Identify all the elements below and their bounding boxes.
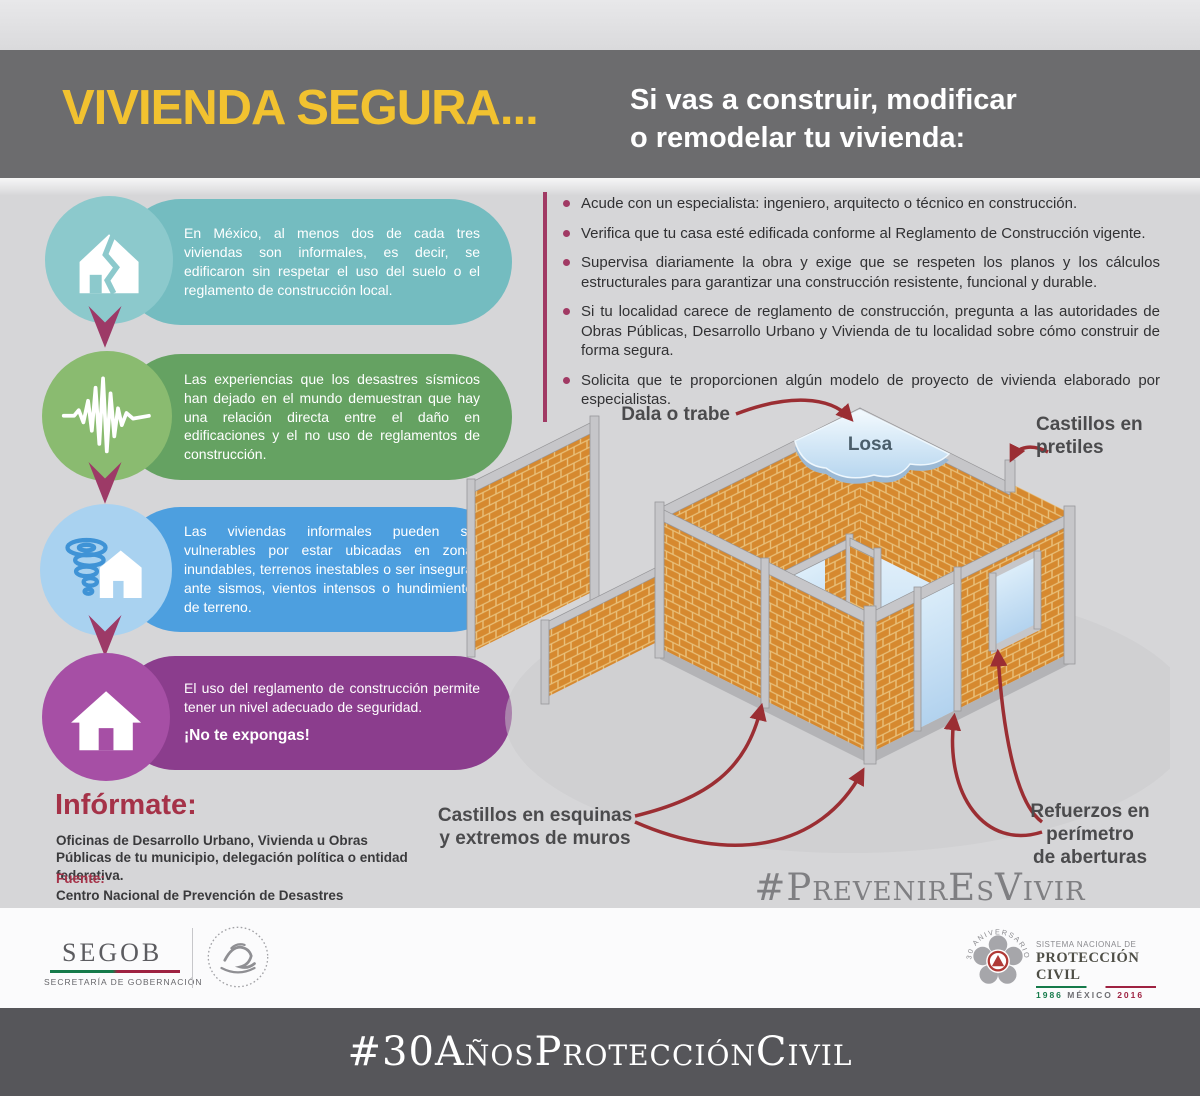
cracked-house-icon xyxy=(63,214,155,306)
bubble-circle-4 xyxy=(42,653,170,781)
arrow-dala xyxy=(736,400,850,418)
hashtag-prevenir-es-vivir: #PrevenirEsVivir xyxy=(710,866,1130,909)
bullet-dot xyxy=(563,259,570,266)
bubble-text: En México, al menos dos de cada tres viv… xyxy=(118,212,512,312)
infographic-poster: VIVIENDA SEGURA... Si vas a construir, m… xyxy=(0,0,1200,1096)
footer-divider xyxy=(192,928,193,988)
label-dala: Dala o trabe xyxy=(621,404,730,425)
top-strip xyxy=(0,0,1200,50)
list-item: Si tu localidad carece de reglamento de … xyxy=(563,302,1160,361)
hashtag-30-anos: #30AñosProtecciónCivil xyxy=(348,1029,853,1075)
list-item: Verifica que tu casa esté edificada conf… xyxy=(563,224,1160,244)
label-pretiles-line1: Castillos en xyxy=(1036,414,1143,435)
subtitle-line-1: Si vas a construir, modificar xyxy=(630,82,1017,120)
list-item-text: Verifica que tu casa esté edificada conf… xyxy=(581,224,1146,244)
source-label: Fuente: xyxy=(56,871,105,886)
mid-wall-column xyxy=(761,558,769,708)
house-construction-diagram: Dala o trabe Castillos en pretiles Losa … xyxy=(430,388,1170,908)
down-arrow-icon xyxy=(86,306,124,350)
bullet-dot xyxy=(563,377,570,384)
bullet-dot xyxy=(563,230,570,237)
corner-column-front xyxy=(864,606,876,764)
segob-wordmark: SEGOB xyxy=(62,938,162,968)
snpc-line2: PROTECCIÓN CIVIL xyxy=(1036,950,1166,984)
list-item-text: Si tu localidad carece de reglamento de … xyxy=(581,302,1160,361)
informate-heading: Infórmate: xyxy=(55,789,197,822)
snpc-line1: SISTEMA NACIONAL DE xyxy=(1036,940,1166,949)
list-item: Supervisa diariamente la obra y exige qu… xyxy=(563,253,1160,292)
label-pretiles-line2: pretiles xyxy=(1036,437,1104,458)
bullet-dot xyxy=(563,308,570,315)
segob-flag-underline xyxy=(50,970,180,973)
corner-column-right xyxy=(1064,506,1075,664)
bullet-dot xyxy=(563,200,570,207)
down-arrow-icon xyxy=(86,462,124,506)
label-esquinas-line1: Castillos en esquinas xyxy=(438,805,632,826)
list-item-text: Acude con un especialista: ingeniero, ar… xyxy=(581,194,1077,214)
corner-column-left xyxy=(655,502,664,658)
segob-subtitle: SECRETARÍA DE GOBERNACIÓN xyxy=(44,977,203,987)
house-icon xyxy=(60,671,152,763)
door-jamb-left xyxy=(914,587,921,731)
snpc-year-start: 1986 xyxy=(1036,990,1063,1000)
seismograph-icon xyxy=(60,369,154,463)
label-losa: Losa xyxy=(848,434,893,455)
window-frame-left xyxy=(989,573,996,651)
list-item-text: Supervisa diariamente la obra y exige qu… xyxy=(581,253,1160,292)
mexico-coat-of-arms-icon xyxy=(205,924,271,990)
label-esquinas-line2: y extremos de muros xyxy=(439,828,630,849)
source-body: Centro Nacional de Prevención de Desastr… xyxy=(56,888,343,903)
bottom-bar: #30AñosProtecciónCivil xyxy=(0,1008,1200,1096)
list-item: Acude con un especialista: ingeniero, ar… xyxy=(563,194,1160,214)
snpc-year-end: 2016 xyxy=(1117,990,1144,1000)
proteccion-civil-30-logo: 30 ANIVERSARIO xyxy=(962,920,1034,992)
window-frame-right xyxy=(1034,551,1041,629)
info-bubble-informal-housing: En México, al menos dos de cada tres viv… xyxy=(118,199,512,325)
tornado-house-icon xyxy=(58,522,153,617)
informate-body: Oficinas de Desarrollo Urbano, Vivienda … xyxy=(56,832,408,884)
snpc-line3: 1986 MÉXICO 2016 xyxy=(1036,990,1166,1000)
page-subtitle: Si vas a construir, modificar o remodela… xyxy=(630,82,1017,157)
label-refuerzos-line1: Refuerzos en xyxy=(1030,801,1149,822)
snpc-text-block: SISTEMA NACIONAL DE PROTECCIÓN CIVIL 198… xyxy=(1036,940,1166,1000)
bubble-circle-1 xyxy=(45,196,173,324)
page-title: VIVIENDA SEGURA... xyxy=(62,80,538,136)
subtitle-line-2: o remodelar tu vivienda: xyxy=(630,120,1017,158)
snpc-country: MÉXICO xyxy=(1067,990,1113,1000)
label-refuerzos-line3: de aberturas xyxy=(1033,847,1147,868)
door-jamb-right xyxy=(954,567,961,711)
label-refuerzos-line2: perímetro xyxy=(1046,824,1134,845)
parapet-column xyxy=(1005,460,1015,492)
snpc-flag-underline xyxy=(1036,986,1156,988)
